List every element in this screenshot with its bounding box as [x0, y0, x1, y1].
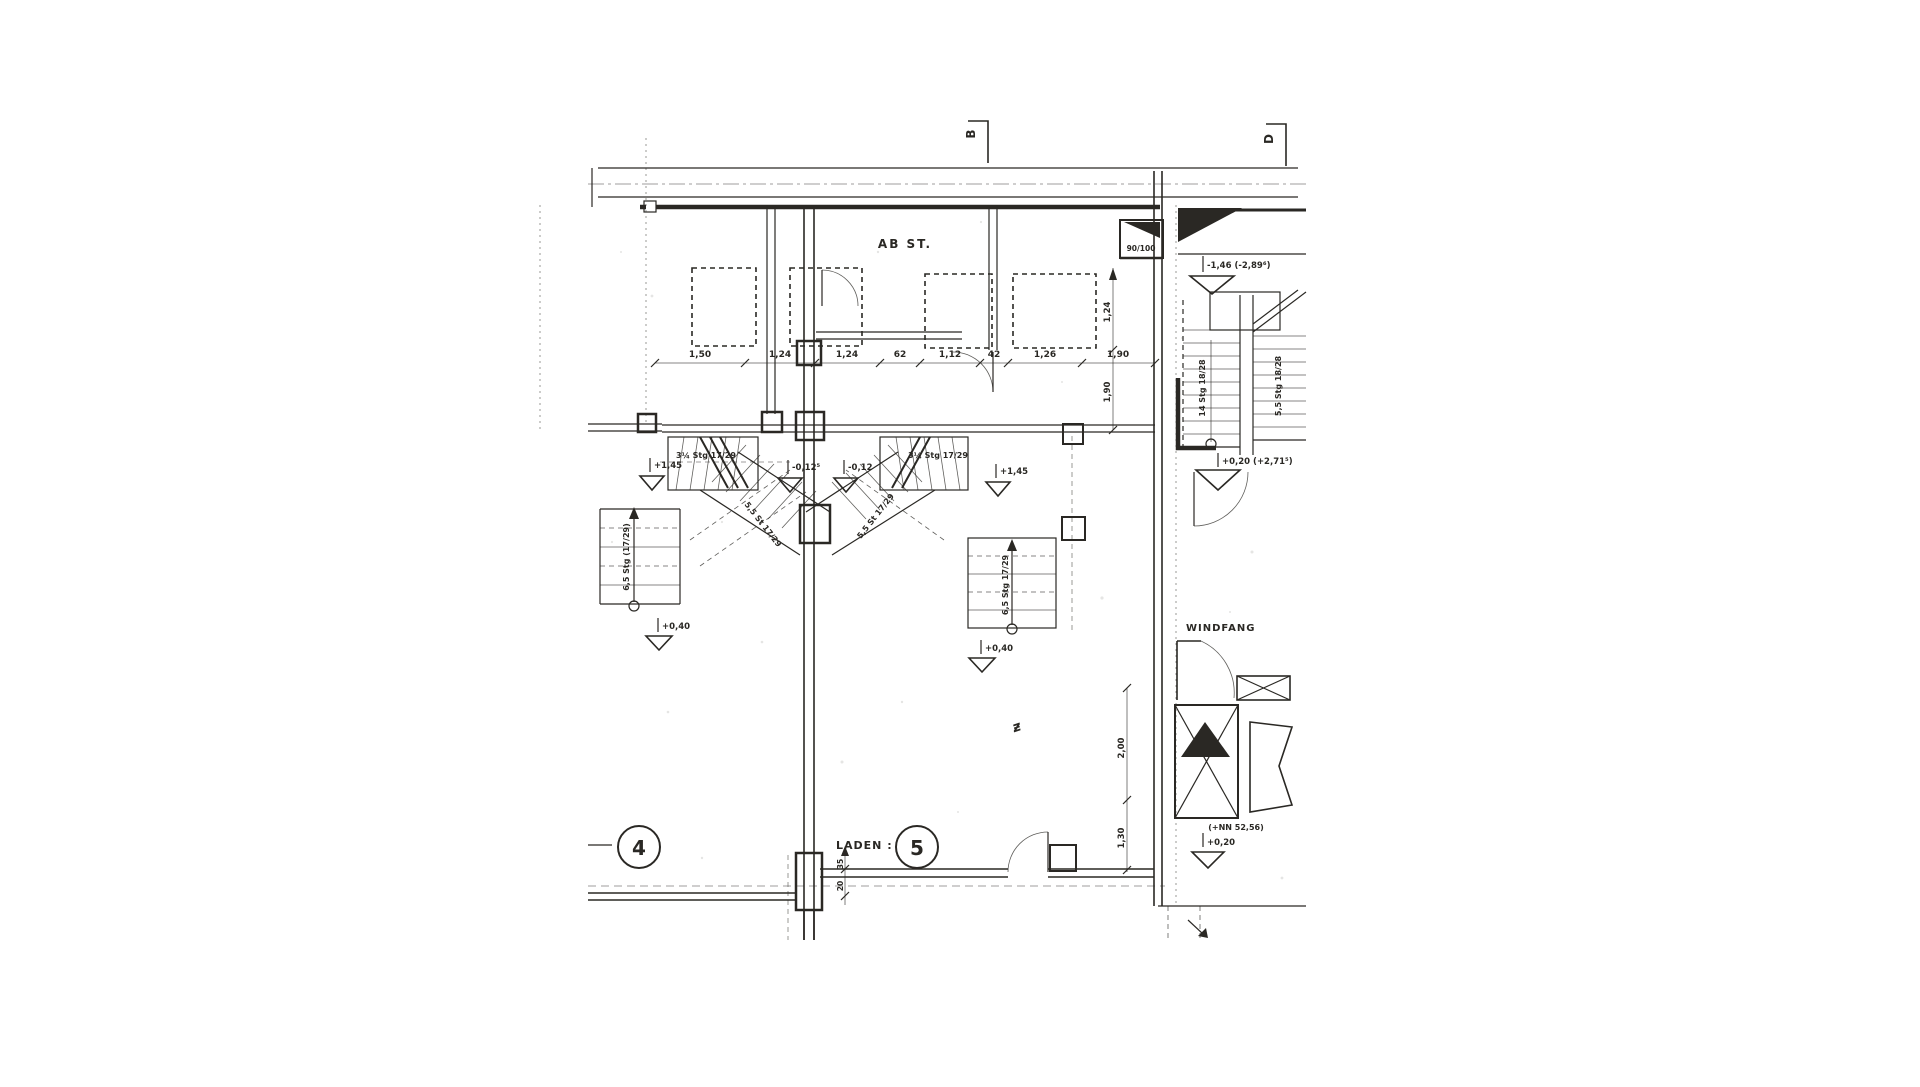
- windfang-label: WINDFANG: [1186, 623, 1255, 634]
- duct-label: 90/100: [1127, 244, 1156, 253]
- unit-4-tag: 4: [588, 826, 660, 868]
- dim-label: 20: [836, 881, 845, 891]
- stair-label: 14 Stg 18/28: [1198, 359, 1207, 417]
- laden-5-tag: LADEN : 5: [836, 826, 938, 868]
- dim-label: 1,50: [689, 350, 711, 360]
- dim-label: 1,90: [1107, 350, 1129, 360]
- dim-label: 1,12: [939, 350, 961, 360]
- level-label: +0,20 (+2,71⁵): [1222, 457, 1293, 467]
- dim-label: 35: [836, 859, 845, 869]
- door-arc: [1201, 641, 1234, 698]
- column: [638, 414, 656, 432]
- left-cut-edge: [588, 168, 662, 431]
- abst-label: AB ST.: [878, 237, 932, 251]
- dim-label: 1,24: [1103, 301, 1113, 322]
- floorplan-drawing: B D AB ST.: [0, 0, 1920, 1087]
- laden-room: 35 20 4 LADEN : 5 ƶ: [588, 718, 1154, 940]
- level-marker-145-left: +1,45: [640, 458, 682, 490]
- level-marker-entrance: +0,20: [1192, 833, 1235, 868]
- column: [1050, 845, 1076, 871]
- handwritten-mark: ƶ: [1010, 718, 1024, 736]
- storage-stall: [692, 268, 756, 346]
- level-marker-040-left: +0,40: [646, 618, 690, 650]
- elevator: [1175, 705, 1292, 818]
- section-marker-b: B: [964, 121, 988, 163]
- dim-chain-top: 1,50 1,24 1,24 62 1,12 42 1,26 1,90: [651, 350, 1159, 367]
- pier: [796, 853, 822, 910]
- storage-stall: [925, 274, 992, 348]
- partition-w1: [767, 208, 775, 414]
- level-marker-020-271: +0,20 (+2,71⁵): [1196, 453, 1293, 490]
- laden-label: LADEN :: [836, 839, 893, 852]
- column: [1062, 517, 1085, 540]
- level-label: +1,45: [1000, 467, 1028, 477]
- stair-straight-left: 6,5 Stg (17/29) +0,40: [600, 507, 690, 650]
- dim-label: 1,90: [1103, 381, 1113, 402]
- storage-stall: [790, 268, 862, 346]
- party-wall: [796, 208, 830, 940]
- grid-lines: [540, 138, 1308, 940]
- dim-label: 42: [988, 350, 1001, 360]
- dim-label: 1,30: [1117, 827, 1127, 848]
- winder-stair-right: 3¼ Stg 17/29: [880, 437, 968, 490]
- hall-door-upper: [1194, 472, 1248, 526]
- section-d-label: D: [1262, 132, 1276, 144]
- north-tick: [1188, 920, 1208, 938]
- wall-thickness-dims: 35 20: [836, 846, 849, 905]
- stair-label: 5,5 St 17/29: [743, 500, 784, 549]
- entrance-door: [1008, 832, 1076, 872]
- stair-label: 6,5 Stg (17/29): [622, 523, 631, 591]
- stair-label: 5,5 St 17/29: [855, 492, 896, 541]
- abst-room: AB ST.: [692, 237, 1096, 348]
- level-label: +0,40: [662, 622, 690, 632]
- level-marker-146: -1,46 (-2,89⁶): [1190, 256, 1271, 294]
- stair-hall: -1,46 (-2,89⁶): [1158, 256, 1306, 940]
- level-label: -0,12: [848, 463, 873, 473]
- stair-label: 5,5 Stg 18/28: [1274, 355, 1283, 416]
- level-label: +0,20: [1207, 838, 1235, 848]
- level-marker-040-mid: +0,40: [969, 640, 1013, 672]
- stair-straight-mid: 6,5 Stg 17/29 +0,40: [968, 517, 1085, 672]
- level-marker-012-right: -0,12: [834, 460, 873, 492]
- column: [762, 412, 782, 432]
- level-label-nn: (+NN 52,56): [1208, 823, 1264, 832]
- door-arc: [1194, 472, 1248, 526]
- stair-label: 6,5 Stg 17/29: [1001, 554, 1010, 615]
- level-label: -1,46 (-2,89⁶): [1207, 261, 1271, 271]
- wall-corner-wedge: [1178, 208, 1242, 242]
- floorplan-page: B D AB ST.: [0, 0, 1920, 1087]
- main-staircase: 14 Stg 18/28 5,5 Stg 18/28: [1178, 290, 1306, 455]
- column: [1063, 424, 1083, 444]
- diagonal-run-right: 5,5 St 17/29: [806, 445, 944, 555]
- level-label: +1,45: [654, 461, 682, 471]
- unit-number: 5: [910, 836, 924, 860]
- unit-number: 4: [632, 836, 646, 860]
- stair-label: 3¼ Stg 17/29: [676, 450, 736, 460]
- level-label: -0,12⁵: [792, 463, 820, 473]
- stair-label: 3¼ Stg 17/29: [908, 450, 968, 460]
- elevator-triangle: [1181, 722, 1230, 757]
- dim-label: 1,24: [836, 350, 858, 360]
- dim-label: 1,24: [769, 350, 791, 360]
- top-wall: [598, 168, 1306, 254]
- door-arc: [822, 270, 858, 306]
- scissor-stair: 3¼ Stg 17/29 3¼ Stg 17/29 5,5 St: [640, 437, 1028, 566]
- shaft-box: [1237, 676, 1290, 700]
- windfang-door: [1177, 641, 1234, 700]
- duct-box: 90/100: [1120, 220, 1163, 258]
- column: [796, 412, 824, 440]
- elevator-door-shape: [1250, 722, 1292, 812]
- partition-w2: [953, 205, 997, 392]
- storage-stall: [1013, 274, 1096, 348]
- section-marker-d: D: [1262, 124, 1286, 166]
- level-label: +0,40: [985, 644, 1013, 654]
- level-marker-145-right: +1,45: [986, 464, 1028, 496]
- dim-label: 62: [894, 350, 907, 360]
- dim-label: 1,26: [1034, 350, 1056, 360]
- right-wall: [1154, 171, 1162, 906]
- section-b-label: B: [964, 127, 978, 138]
- dim-label: 2,00: [1117, 737, 1127, 758]
- door-arc: [1008, 832, 1048, 872]
- dim-vertical-lower: 2,00 1,30: [1117, 684, 1131, 874]
